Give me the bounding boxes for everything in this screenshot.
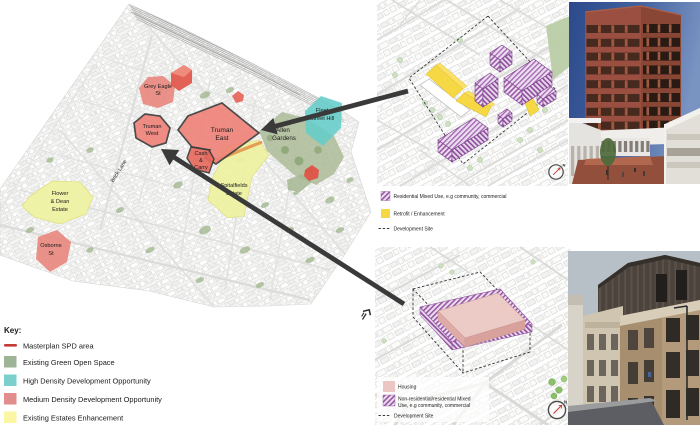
svg-text:West: West (146, 131, 159, 137)
svg-text:N: N (564, 400, 567, 405)
svg-text:Allen: Allen (276, 127, 290, 134)
svg-text:Non-residential/residential Mi: Non-residential/residential Mixed (398, 397, 471, 403)
svg-text:Gardens: Gardens (272, 135, 296, 142)
svg-text:Existing Green Open Space: Existing Green Open Space (23, 358, 115, 367)
svg-text:Retrofit / Enhancement: Retrofit / Enhancement (394, 211, 446, 217)
svg-text:Osborne: Osborne (40, 243, 61, 249)
svg-text:Residential Mixed Use, e.g com: Residential Mixed Use, e.g community, co… (394, 194, 507, 200)
svg-text:Cash: Cash (194, 151, 207, 157)
svg-text:Truman: Truman (142, 124, 161, 130)
svg-text:Existing Estates Enhancement: Existing Estates Enhancement (23, 414, 123, 423)
svg-text:Masterplan SPD area: Masterplan SPD area (23, 342, 95, 351)
svg-text:&: & (199, 158, 203, 164)
svg-text:Use, e.g community, commercial: Use, e.g community, commercial (398, 403, 470, 409)
svg-text:St: St (48, 251, 54, 257)
svg-text:& Dean: & Dean (51, 199, 70, 205)
svg-text:High Density Development Oppor: High Density Development Opportunity (23, 377, 151, 386)
svg-text:Flower: Flower (52, 191, 69, 197)
svg-text:Truman: Truman (211, 127, 234, 134)
svg-text:East: East (215, 135, 228, 142)
svg-text:Housing: Housing (398, 385, 417, 391)
svg-text:Development Site: Development Site (394, 414, 434, 420)
svg-text:Grey Eagle: Grey Eagle (144, 84, 172, 90)
svg-text:Development Site: Development Site (394, 227, 434, 233)
svg-text:St: St (155, 91, 161, 97)
svg-text:Key:: Key: (4, 326, 21, 335)
svg-text:Medium Density Development Opp: Medium Density Development Opportunity (23, 395, 162, 404)
svg-text:Estate: Estate (52, 207, 68, 213)
svg-text:N: N (563, 163, 566, 168)
